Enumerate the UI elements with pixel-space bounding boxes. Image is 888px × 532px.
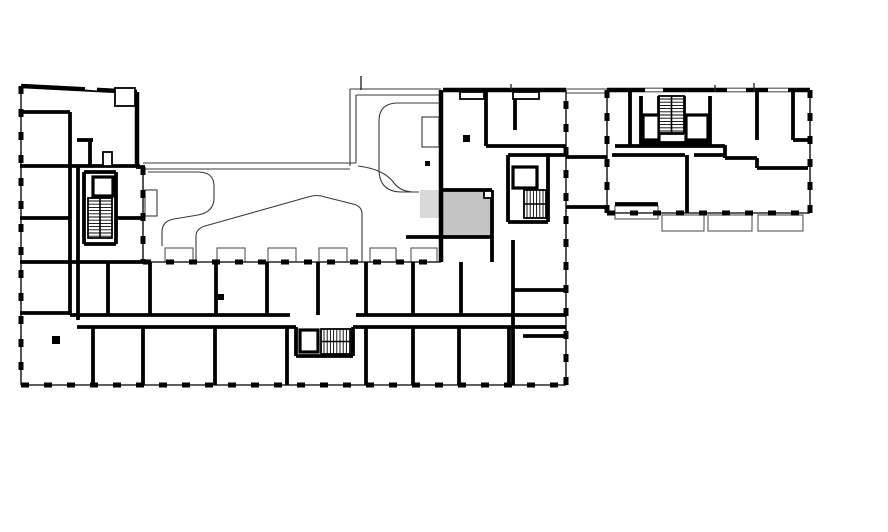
elevator-shaft	[643, 115, 659, 140]
column	[52, 336, 60, 344]
balcony-outline	[708, 215, 752, 231]
elevator-shaft	[300, 330, 318, 352]
elevator-shaft	[686, 115, 708, 140]
balcony-outline	[662, 215, 704, 231]
window-recess	[103, 152, 112, 166]
floor-plan-svg	[0, 0, 888, 532]
window-recess	[513, 92, 539, 99]
column	[463, 135, 470, 142]
elevator-shaft	[93, 177, 113, 196]
highlighted-unit-balcony[interactable]	[420, 190, 440, 218]
window-recess	[460, 92, 484, 99]
floor-plan-page	[0, 0, 888, 532]
wall-openings-segment	[85, 88, 97, 89]
balcony-outline	[758, 215, 803, 231]
background	[0, 0, 888, 532]
column	[425, 161, 430, 166]
elevator-shaft	[513, 167, 537, 188]
window-recess	[115, 88, 135, 106]
window-recess	[484, 191, 492, 198]
column	[218, 294, 224, 300]
